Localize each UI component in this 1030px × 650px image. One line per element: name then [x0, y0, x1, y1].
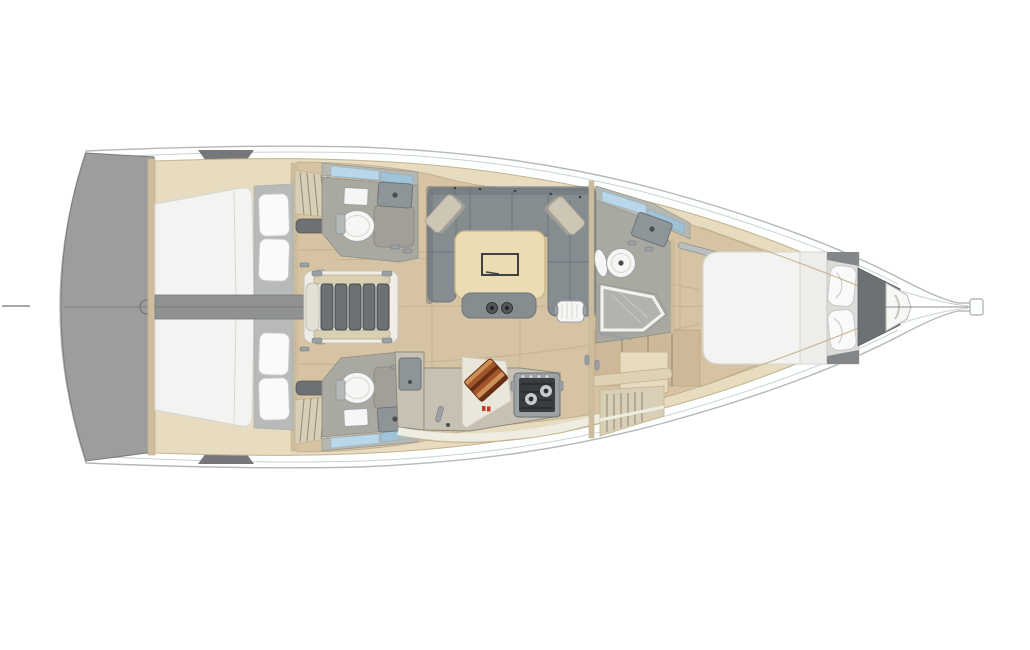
stair-rail-top [314, 275, 390, 284]
cup-holder-hole [490, 306, 494, 310]
counter-red-mark [482, 406, 486, 411]
forward-bulkhead [589, 181, 594, 438]
stove-gimbal [511, 381, 515, 391]
bulkhead-door-handle [595, 360, 599, 370]
aft-bulkhead [148, 159, 155, 455]
door-handle [300, 263, 309, 267]
folding-stool [557, 301, 584, 322]
stove-gimbal [559, 381, 563, 391]
door-handle [645, 247, 653, 251]
cup-holder-hole [505, 306, 509, 310]
forward-cabin-base [592, 330, 700, 436]
stair-treads [321, 284, 389, 330]
salon [424, 186, 598, 322]
door-handle [391, 245, 400, 249]
bowsprit-tip [970, 299, 983, 315]
door-handle [300, 347, 309, 351]
stool-hinge [554, 306, 558, 315]
toilet-drain [618, 260, 623, 265]
bulkhead-door-handle [585, 355, 589, 365]
hatch-panel [344, 187, 369, 205]
table-bench [462, 293, 536, 318]
salon-table [455, 231, 545, 299]
pillow [258, 332, 289, 375]
sink-drain [392, 416, 397, 421]
toilet-tank [336, 380, 345, 400]
stove [511, 373, 563, 417]
pillow [258, 238, 289, 281]
double-bed [155, 188, 254, 301]
galley-sink [399, 358, 421, 390]
toilet-tank [336, 214, 345, 234]
door-handle [628, 241, 636, 245]
sink-drain [392, 192, 397, 197]
shower-area [374, 205, 414, 247]
floorplan-canvas [0, 0, 1030, 650]
stool-hinge [583, 306, 587, 315]
pillow [258, 193, 289, 236]
pillow [827, 265, 857, 307]
faucet-base [446, 423, 450, 427]
head-partition [671, 240, 674, 334]
pillow [258, 377, 289, 420]
stair-rail-bottom [314, 330, 390, 339]
galley-sink-drain [408, 380, 412, 384]
bow-section [858, 268, 970, 346]
boat-floorplan-svg [0, 0, 1030, 650]
sink-drain [649, 226, 654, 231]
door-handle [403, 249, 412, 253]
bottom-step [306, 283, 319, 331]
double-bed [155, 313, 254, 426]
settee-backrest-left [426, 186, 433, 304]
counter-red-mark [487, 407, 491, 412]
companionway [304, 271, 398, 343]
hatch-panel [344, 408, 369, 426]
